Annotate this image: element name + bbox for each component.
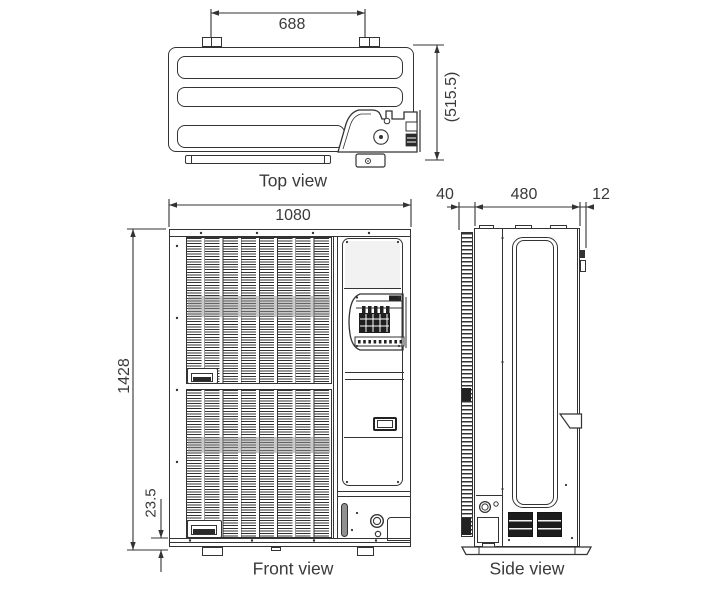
side-view-handle: [560, 414, 582, 428]
dim-688-lines: [211, 9, 365, 37]
top-view-service-valve-assembly: [338, 110, 420, 167]
dim-side-lines: [447, 202, 592, 248]
front-view-terminal-label-ticks: [358, 340, 402, 344]
front-view-valve-terminal-assembly: [349, 294, 406, 350]
dimensional-drawing-canvas: 688 (515.5) Top view: [0, 0, 714, 600]
side-view-base-rail: [462, 547, 591, 555]
dim-23-5-arrows: [158, 530, 163, 558]
dim-1080-lines: [169, 199, 411, 227]
dim-23-5-lines: [151, 499, 168, 572]
linework-overlay: [0, 0, 714, 600]
front-view-knockout-holes: [371, 515, 384, 537]
screw-dots: [176, 232, 573, 542]
dim-1428-lines: [127, 229, 168, 550]
side-view-knockout-holes: [480, 502, 499, 513]
